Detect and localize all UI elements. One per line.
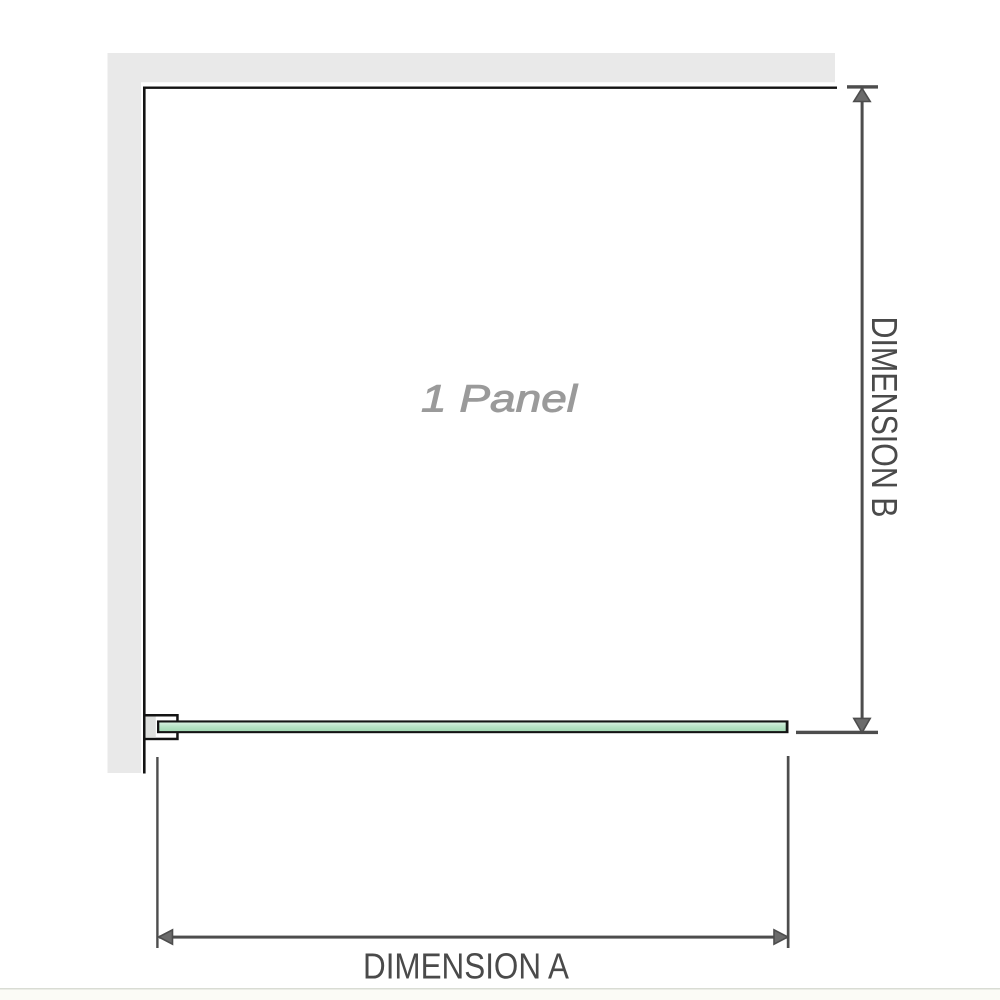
svg-text:1 Panel: 1 Panel bbox=[421, 379, 579, 421]
svg-text:DIMENSION A: DIMENSION A bbox=[363, 946, 569, 987]
svg-text:DIMENSION B: DIMENSION B bbox=[864, 317, 905, 518]
